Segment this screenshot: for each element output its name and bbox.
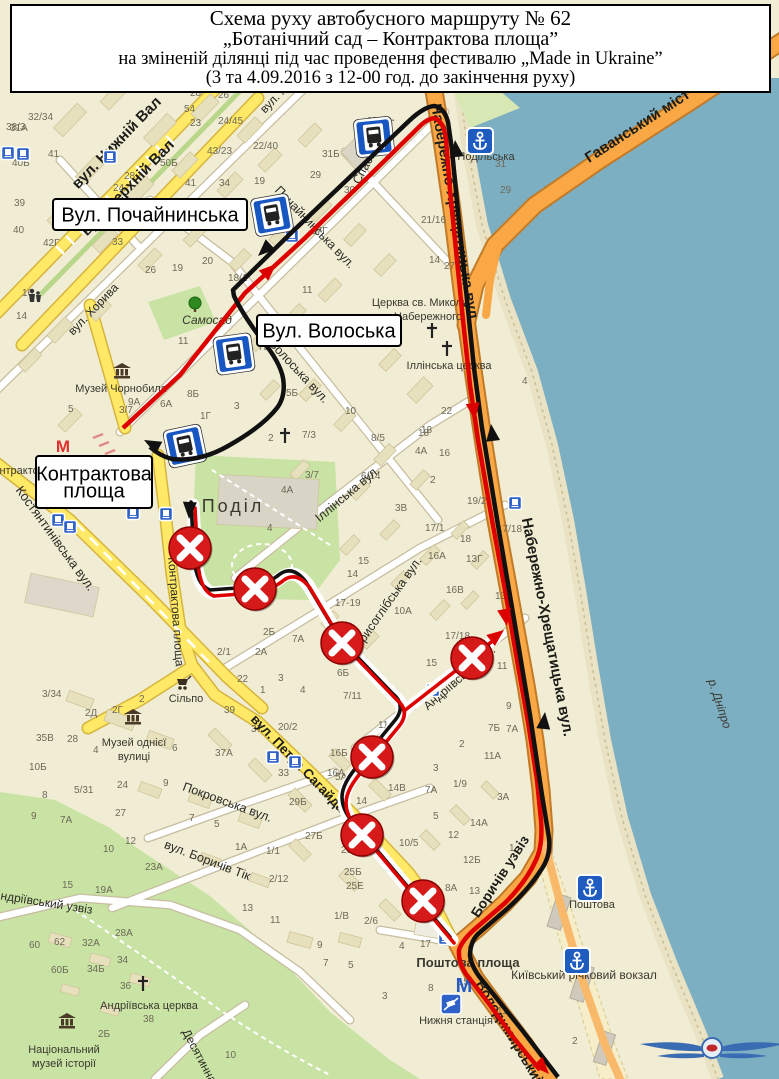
house-number: 29Б (289, 797, 307, 808)
road-closed-sign (351, 736, 395, 780)
house-number: 14А (470, 818, 488, 829)
house-number: 3/34 (42, 689, 62, 700)
house-number: 14 (429, 255, 441, 266)
transit-stop-icon (160, 508, 173, 521)
house-number: 41 (48, 149, 60, 160)
house-number: 29 (310, 170, 322, 181)
house-number: 34 (219, 178, 231, 189)
house-number: 35В (36, 733, 54, 744)
house-number: 7/3 (302, 430, 316, 441)
house-number: 21/16 (421, 215, 446, 226)
scheme-title: Схема руху автобусного маршруту № 62 „Бо… (10, 4, 771, 93)
bus-route-scheme: 38/332/3449282635А31А542324/45374140Б50Б… (0, 0, 779, 1079)
house-number: 32/34 (28, 112, 53, 123)
house-number: 6А (160, 399, 173, 410)
house-number: 29 (500, 185, 512, 196)
metro-icon: М (56, 437, 70, 456)
house-number: 8А (445, 883, 458, 894)
house-number: 2 (459, 739, 465, 750)
house-number: 3/7 (305, 470, 319, 481)
house-number: 11 (178, 336, 189, 347)
house-number: 9 (163, 778, 169, 789)
transit-stop-icon (104, 151, 117, 164)
house-number: 6 (172, 743, 178, 754)
house-number: 41 (185, 178, 197, 189)
house-number: 23 (190, 118, 202, 129)
house-number: 11А (484, 751, 501, 762)
poi-label: Набережного (394, 311, 462, 323)
house-number: 4 (267, 523, 273, 534)
house-number: 20 (202, 256, 214, 267)
house-number: 1 (260, 685, 266, 696)
house-number: 27 (444, 261, 456, 272)
house-number: 5 (433, 811, 439, 822)
house-number: 19 (172, 263, 184, 274)
anchor-pier-icon (577, 875, 603, 901)
house-number: 4 (399, 941, 405, 952)
anchor-pier-icon (564, 948, 590, 974)
title-line-1: Схема руху автобусного маршруту № 62 (12, 8, 769, 29)
house-number: 3А (497, 792, 510, 803)
house-number: 9 (506, 701, 512, 712)
house-number: 2Г (112, 705, 124, 716)
house-number: 3/7 (119, 405, 133, 416)
house-number: 60Б (51, 965, 69, 976)
house-number: 16А (428, 551, 446, 562)
house-number: 10Б (29, 762, 47, 773)
callout-voloska: Вул. Волоська (257, 315, 401, 346)
house-number: 7А (60, 815, 73, 826)
house-number: 31Б (322, 149, 340, 160)
house-number: 2/12 (269, 874, 289, 885)
house-number: 7А (506, 724, 519, 735)
poi-label: вулиці (118, 751, 150, 763)
house-number: 25Е (346, 881, 364, 892)
house-number: 7 (189, 813, 195, 824)
house-number: 22 (441, 406, 453, 417)
house-number: 13 (242, 903, 254, 914)
house-number: 17-19 (335, 598, 361, 609)
house-number: 28 (67, 734, 79, 745)
house-number: 7А (425, 785, 438, 796)
poi-label: Нижня станція (419, 1015, 493, 1027)
transit-stop-icon (64, 521, 77, 534)
house-number: 12Б (463, 855, 481, 866)
house-number: 31А (10, 123, 28, 134)
bus-stop-sign (162, 423, 207, 468)
house-number: 16Б (330, 748, 348, 759)
poi-label: Національний (28, 1044, 100, 1056)
transit-stop-icon (17, 148, 30, 161)
house-number: 36 (120, 981, 132, 992)
house-number: 38 (143, 1014, 155, 1025)
poi-label: Музей Чорнобиля (75, 383, 167, 395)
house-number: 33 (278, 768, 290, 779)
house-number: 16 (439, 448, 451, 459)
house-number: 2/6 (364, 916, 378, 927)
house-number: 14 (356, 796, 368, 807)
road-closed-sign (321, 622, 365, 666)
house-number: 3В (395, 503, 408, 514)
house-number: 1/9 (453, 779, 467, 790)
house-number: 39 (224, 705, 236, 716)
house-number: 27Б (305, 831, 323, 842)
house-number: 11 (302, 285, 313, 296)
house-number: 62 (54, 937, 66, 948)
title-line-3: на зміненій ділянці під час проведення ф… (12, 50, 769, 69)
house-number: 42Г (43, 238, 60, 249)
house-number: 27 (115, 808, 127, 819)
house-number: 1А (235, 842, 248, 853)
house-number: 1/В (334, 911, 349, 922)
transit-stop-icon (2, 147, 15, 160)
road-closed-sign (341, 814, 385, 858)
house-number: 15 (62, 880, 74, 891)
house-number: 24/45 (218, 116, 243, 127)
house-number: 4 (300, 685, 306, 696)
poi-label: Сільпо (169, 693, 204, 705)
poi-label: Церква св. Миколи (372, 297, 468, 309)
road-closed-sign (402, 880, 446, 924)
house-number: 34Б (87, 964, 105, 975)
house-number: 4А (415, 446, 428, 457)
house-number: 10А (394, 606, 412, 617)
house-number: 8/5 (371, 433, 385, 444)
title-line-2: „Ботанічний сад – Контрактова площа” (12, 29, 769, 49)
poi-label: Іллінська церква (407, 360, 493, 372)
road-closed-sign (169, 527, 213, 571)
house-number: 23А (145, 862, 163, 873)
house-number: 14 (347, 569, 359, 580)
house-number: 37А (215, 748, 233, 759)
house-number: 15 (426, 658, 438, 669)
road-closed-sign (234, 568, 278, 612)
house-number: 7 (323, 958, 329, 969)
poi-label: Андріївська церква (100, 1000, 199, 1012)
house-number: 2/1 (217, 647, 231, 658)
funicular-icon (441, 994, 461, 1014)
house-number: 14В (388, 783, 406, 794)
transit-stop-icon (289, 756, 302, 769)
bus-stop-sign (250, 193, 294, 237)
house-number: 11 (270, 915, 281, 926)
house-number: 28А (115, 928, 133, 939)
house-number: 19 (254, 176, 266, 187)
house-number: 13Г (466, 554, 483, 565)
house-number: 60 (29, 940, 41, 951)
house-number: 26 (145, 265, 157, 276)
house-number: 2 (430, 475, 436, 486)
transit-stop-icon (509, 497, 522, 510)
house-number: 3 (278, 673, 284, 684)
house-number: 40 (13, 225, 25, 236)
callout-text: площа (63, 481, 125, 503)
house-number: 2Б (98, 1029, 111, 1040)
house-number: 14 (16, 311, 28, 322)
transit-stop-icon (52, 514, 65, 527)
poi-label: Поділ (202, 496, 265, 516)
callout-kontraktova: Контрактоваплоща (36, 456, 153, 508)
house-number: 25Б (344, 867, 362, 878)
house-number: 9 (317, 940, 323, 951)
house-number: 1Г (200, 411, 212, 422)
house-number: 17 (420, 939, 432, 950)
bus-stop-sign (213, 333, 256, 376)
house-number: 17/1 (425, 523, 445, 534)
house-number: 5 (214, 819, 220, 830)
house-number: 1/1 (266, 846, 280, 857)
house-number: 8Б (187, 389, 200, 400)
house-number: 34 (117, 955, 129, 966)
house-number: 3 (433, 763, 439, 774)
house-number: 18 (418, 428, 430, 439)
house-number: 5 (68, 404, 74, 415)
house-number: 33 (112, 237, 124, 248)
house-number: 5/31 (74, 785, 94, 796)
house-number: 6Б (337, 668, 350, 679)
house-number: 2 (572, 1036, 578, 1047)
transit-stop-icon (267, 751, 280, 764)
house-number: 4 (522, 376, 528, 387)
house-number: 5Б (286, 388, 299, 399)
house-number: 22/40 (253, 141, 278, 152)
house-number: 12 (448, 830, 460, 841)
house-number: 2А (255, 647, 268, 658)
title-line-4: (3 та 4.09.2016 з 12-00 год. до закінчен… (12, 69, 769, 88)
house-number: 7Б (488, 723, 501, 734)
house-number: 2Д (85, 708, 98, 719)
house-number: 2 (139, 694, 145, 705)
house-number: 24 (117, 780, 129, 791)
house-number: 4А (281, 485, 294, 496)
house-number: 2 (268, 433, 274, 444)
house-number: 3 (382, 991, 388, 1002)
house-number: 39 (14, 198, 26, 209)
callout-text: Вул. Волоська (262, 321, 396, 343)
house-number: 19А (95, 885, 113, 896)
house-number: 20/2 (278, 722, 298, 733)
house-number: 5 (348, 960, 354, 971)
anchor-pier-icon (467, 128, 493, 154)
callout-text: Вул. Почайнинська (61, 205, 239, 227)
house-number: 8 (42, 790, 48, 801)
house-number: 16А (327, 768, 345, 779)
house-number: 10 (103, 844, 115, 855)
house-number: 2Б (263, 627, 276, 638)
poi-label: Музей однієї (102, 737, 167, 749)
house-number: 7/11 (343, 691, 362, 702)
house-number: 18 (460, 534, 472, 545)
house-number: 32А (82, 938, 100, 949)
house-number: 15 (358, 556, 370, 567)
house-number: 16В (446, 585, 464, 596)
house-number: 3 (234, 401, 240, 412)
house-number: 10 (345, 406, 357, 417)
poi-label: музей історії (32, 1058, 96, 1070)
callout-pochaininska: Вул. Почайнинська (53, 199, 247, 230)
house-number: 22 (237, 674, 249, 685)
house-number: 9 (31, 811, 37, 822)
house-number: 10/5 (399, 838, 419, 849)
house-number: 7А (292, 634, 305, 645)
house-number: 10 (225, 1050, 237, 1061)
house-number: 12 (125, 836, 137, 847)
road-closed-sign (451, 637, 495, 681)
house-number: 4 (93, 745, 99, 756)
house-number: 43/23 (207, 146, 232, 157)
house-number: 54 (184, 104, 196, 115)
house-number: 8 (428, 983, 434, 994)
map-canvas: 38/332/3449282635А31А542324/45374140Б50Б… (0, 0, 779, 1079)
house-number: 11 (497, 661, 508, 672)
